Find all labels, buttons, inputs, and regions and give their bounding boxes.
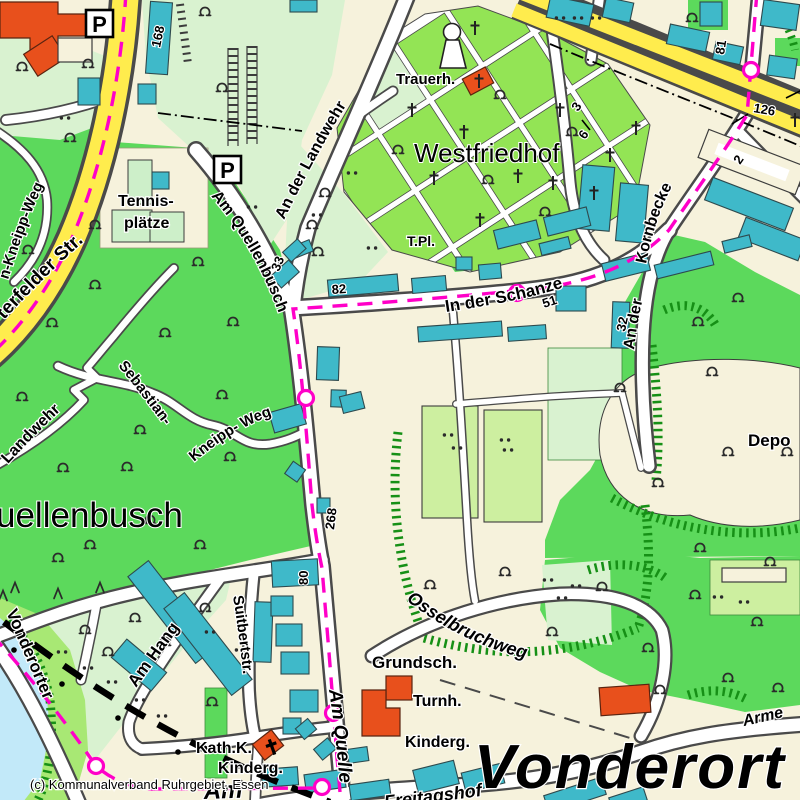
poi-label-kindergarten-2: Kinderg. [218, 760, 283, 777]
number-80: 80 [296, 571, 311, 585]
poi-label-kath-kirche: Kath.K. [196, 740, 252, 757]
parking-sign-1-letter: P [92, 12, 107, 37]
allotment-parcel-2 [484, 410, 542, 522]
place-label-westfriedhof: Westfriedhof [414, 138, 560, 168]
place-label-quellenbusch: uellenbusch [0, 496, 183, 535]
poi-label-tennis-1: Tennis- [118, 193, 174, 210]
poi-label-tpl: T.Pl. [407, 233, 435, 249]
grundschule-building [386, 676, 412, 700]
number-81: 81 [712, 39, 729, 56]
number-32: 32 [613, 315, 631, 332]
place-label-vonderort: Vonderort [474, 733, 786, 800]
poi-label-tennis-2: plätze [124, 215, 169, 232]
city-map: Westfriedhof uellenbusch Vonderort Depo … [0, 0, 800, 800]
poi-label-kindergarten: Kinderg. [405, 734, 470, 751]
number-82: 82 [331, 281, 346, 297]
parking-sign-2-letter: P [220, 158, 235, 183]
route-number-268: 268 [322, 507, 340, 530]
poi-label-trauerhalle: Trauerh. [396, 71, 455, 88]
poi-label-grundschule: Grundsch. [372, 653, 457, 672]
place-label-deponie: Depo [748, 431, 791, 450]
parking-sign-1: P [86, 10, 113, 37]
poi-label-turnhalle: Turnh. [413, 693, 462, 710]
copyright-attribution: (c) Kommunalverband Ruhrgebiet, Essen [30, 777, 268, 792]
parking-sign-2: P [214, 156, 241, 183]
